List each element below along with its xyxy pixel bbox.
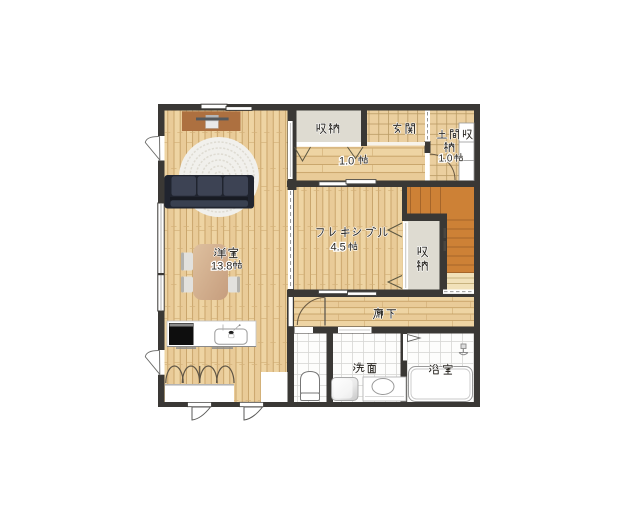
svg-text:1.0: 1.0 <box>439 154 453 165</box>
svg-text:4.5: 4.5 <box>331 242 346 254</box>
svg-text:13.8: 13.8 <box>211 261 232 273</box>
svg-text:1.0: 1.0 <box>339 156 354 168</box>
